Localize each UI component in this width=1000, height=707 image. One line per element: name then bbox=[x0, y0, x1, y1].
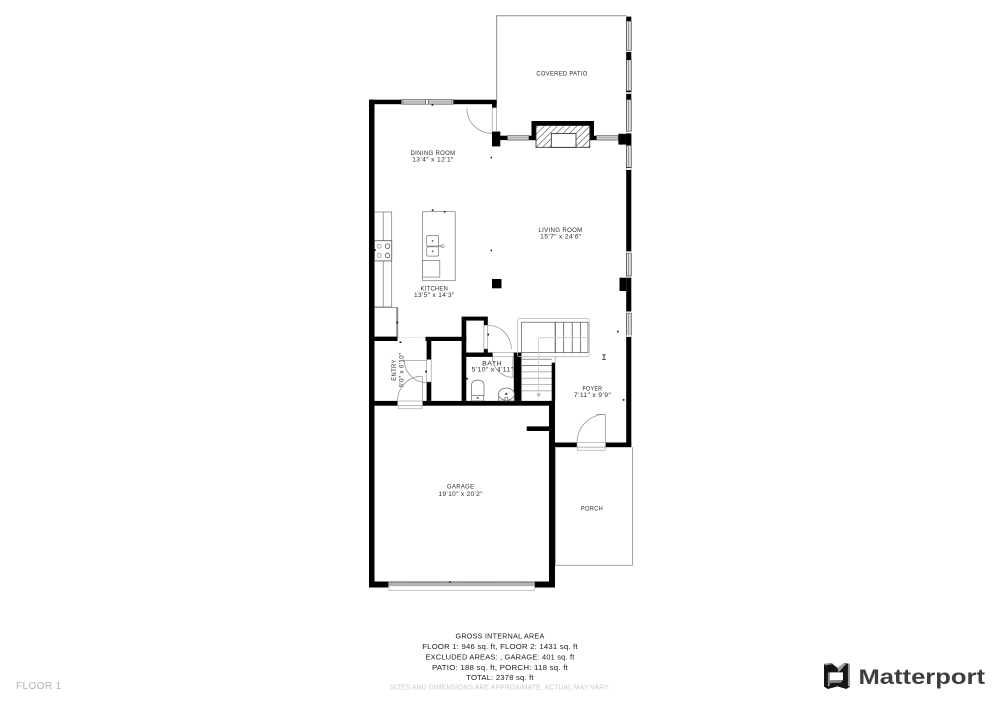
svg-text:Matterport: Matterport bbox=[859, 665, 986, 689]
svg-text:EXCLUDED AREAS: , GARAGE: 401: EXCLUDED AREAS: , GARAGE: 401 sq. ft bbox=[426, 652, 576, 661]
svg-text:PATIO: 188 sq. ft, PORCH: 118: PATIO: 188 sq. ft, PORCH: 118 sq. ft bbox=[432, 663, 569, 672]
svg-text:FLOOR 1: FLOOR 1 bbox=[16, 681, 62, 692]
svg-text:GARAGE: GARAGE bbox=[447, 484, 474, 491]
svg-text:TOTAL: 2378 sq. ft: TOTAL: 2378 sq. ft bbox=[466, 673, 534, 682]
svg-text:FLOOR 1: 946 sq. ft, FLOOR 2:: FLOOR 1: 946 sq. ft, FLOOR 2: 1431 sq. f… bbox=[422, 642, 578, 651]
svg-text:7’11″ x 9’9″: 7’11″ x 9’9″ bbox=[574, 392, 612, 399]
svg-text:13’5″ x 14’3″: 13’5″ x 14’3″ bbox=[414, 292, 455, 299]
svg-text:COVERED PATIO: COVERED PATIO bbox=[536, 70, 587, 77]
svg-text:SIZES AND DIMENSIONS ARE APPRO: SIZES AND DIMENSIONS ARE APPROXIMATE, AC… bbox=[390, 682, 610, 691]
svg-text:GROSS INTERNAL AREA: GROSS INTERNAL AREA bbox=[456, 632, 546, 641]
svg-text:15’7″ x 24’6″: 15’7″ x 24’6″ bbox=[540, 234, 582, 241]
svg-text:13’4″ x 12’1″: 13’4″ x 12’1″ bbox=[412, 157, 454, 164]
svg-text:5’10″ x 4’11″: 5’10″ x 4’11″ bbox=[472, 367, 514, 374]
svg-text:6’0″ x 6’10″: 6’0″ x 6’10″ bbox=[398, 352, 405, 387]
svg-text:19’10″ x 20’2″: 19’10″ x 20’2″ bbox=[439, 491, 484, 498]
svg-text:PORCH: PORCH bbox=[581, 505, 603, 512]
svg-text:ENTRY: ENTRY bbox=[391, 359, 398, 381]
